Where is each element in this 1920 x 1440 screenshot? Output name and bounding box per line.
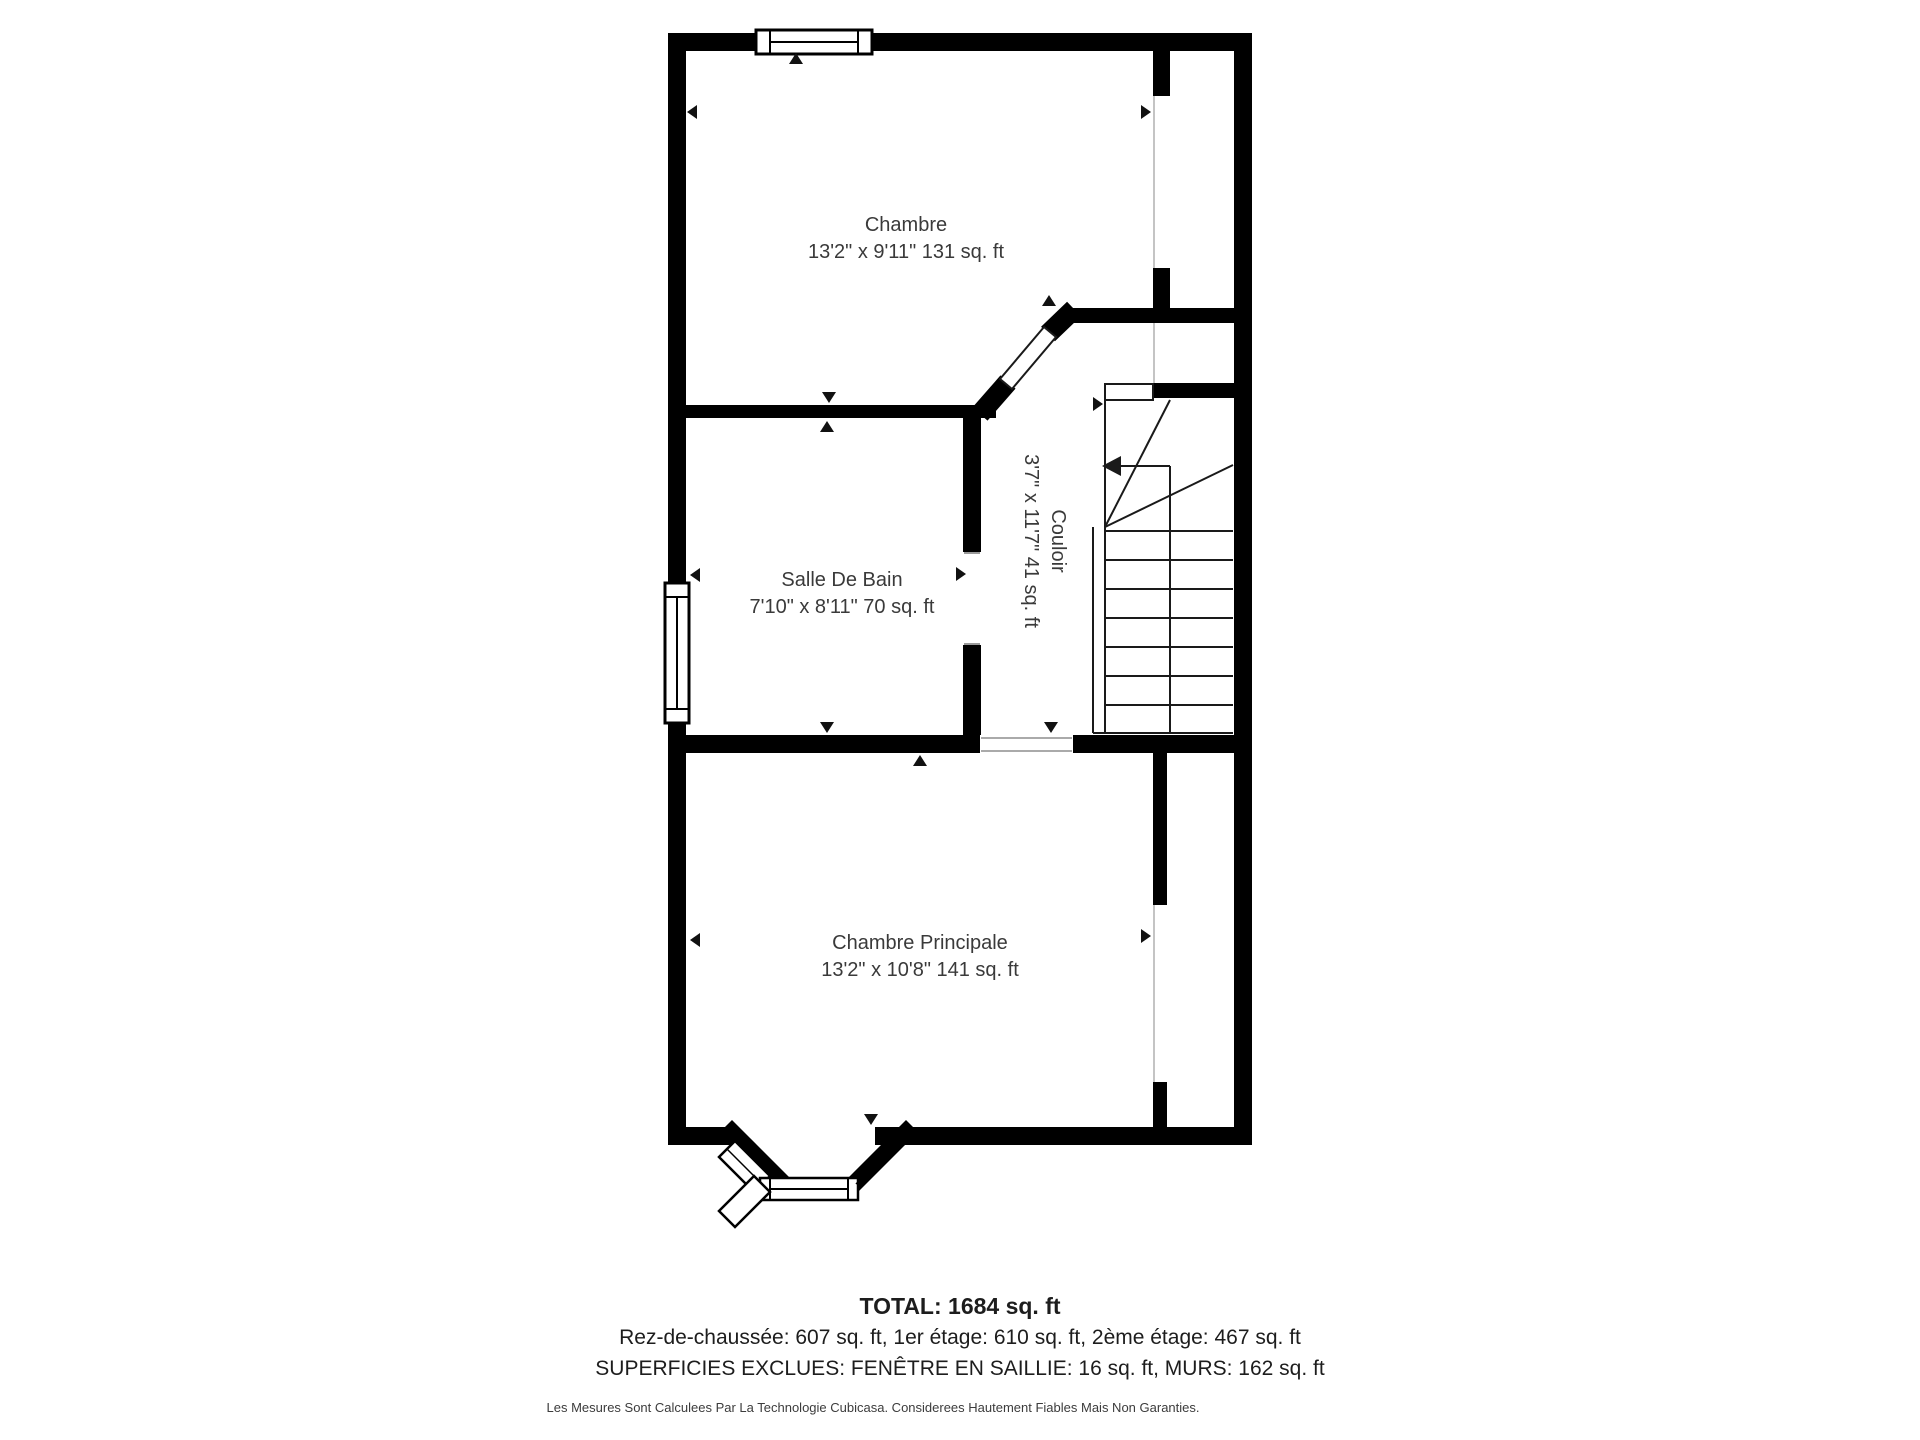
couloir-down-arrow-icon [1044,722,1058,733]
chambre-left-arrow-icon [687,105,697,119]
wall-stub-chp-upper [1153,753,1167,905]
wall-couloir-bottom-left [668,735,980,753]
room-name: Couloir [1044,381,1071,701]
room-label-chambre-principale: Chambre Principale 13'2" x 10'8" 141 sq.… [770,930,1070,984]
window-top [756,30,872,54]
room-dimensions: 13'2" x 9'11" 131 sq. ft [756,239,1056,266]
sdb-up-arrow-icon [820,421,834,432]
wall-couloir-bottom-right [1073,735,1252,753]
wall-right [1234,33,1252,1145]
window-bay-bottom [760,1178,858,1200]
area-summary: TOTAL: 1684 sq. ft Rez-de-chaussée: 607 … [0,1290,1920,1384]
wall-bottom-right [875,1127,1252,1145]
room-label-salle-de-bain: Salle De Bain 7'10" x 8'11" 70 sq. ft [692,567,992,621]
wall-stair-landing [1153,383,1234,398]
stairs [1093,384,1233,733]
floor-areas-text: Rez-de-chaussée: 607 sq. ft, 1er étage: … [0,1322,1920,1353]
windows [665,30,891,1227]
wall-chambre-sdb [668,405,996,418]
excluded-areas-text: SUPERFICIES EXCLUES: FENÊTRE EN SAILLIE:… [0,1353,1920,1384]
diagonal-door [1000,327,1056,389]
window-left [665,583,689,723]
room-dimensions: 7'10" x 8'11" 70 sq. ft [692,594,992,621]
chp-down-arrow-icon [864,1114,878,1125]
chambre-down-arrow-icon [822,392,836,403]
room-name: Salle De Bain [692,567,992,594]
wall-sdb-right-upper [963,405,981,552]
chp-up-arrow-icon [913,755,927,766]
room-name: Chambre Principale [770,930,1070,957]
couloir-up-arrow-icon [1042,295,1056,306]
wall-diagonal-upper [1048,309,1074,334]
stair-top-tread [1105,384,1153,400]
room-dimensions: 3'7" x 11'7" 41 sq. ft [1017,381,1044,701]
room-label-chambre: Chambre 13'2" x 9'11" 131 sq. ft [756,212,1056,266]
chambre-right-arrow-icon [1141,105,1151,119]
couloir-right-arrow-icon [1093,397,1103,411]
wall-stub-chp-lower [1153,1082,1167,1127]
wall-stub-top [1153,51,1170,96]
room-label-couloir: Couloir 3'7" x 11'7" 41 sq. ft [1017,381,1071,701]
room-dimensions: 13'2" x 10'8" 141 sq. ft [770,957,1070,984]
total-area-text: TOTAL: 1684 sq. ft [0,1290,1920,1322]
wall-chambre-couloir [1062,308,1252,323]
wall-diagonal-lower [980,382,1008,414]
room-name: Chambre [756,212,1056,239]
disclaimer-text: Les Mesures Sont Calculees Par La Techno… [473,1400,1273,1415]
chp-left-arrow-icon [690,933,700,947]
wall-sdb-right-lower [963,645,981,735]
floorplan-canvas: Chambre 13'2" x 9'11" 131 sq. ft Salle D… [0,0,1920,1440]
sdb-down-arrow-icon [820,722,834,733]
chp-right-arrow-icon [1141,929,1151,943]
